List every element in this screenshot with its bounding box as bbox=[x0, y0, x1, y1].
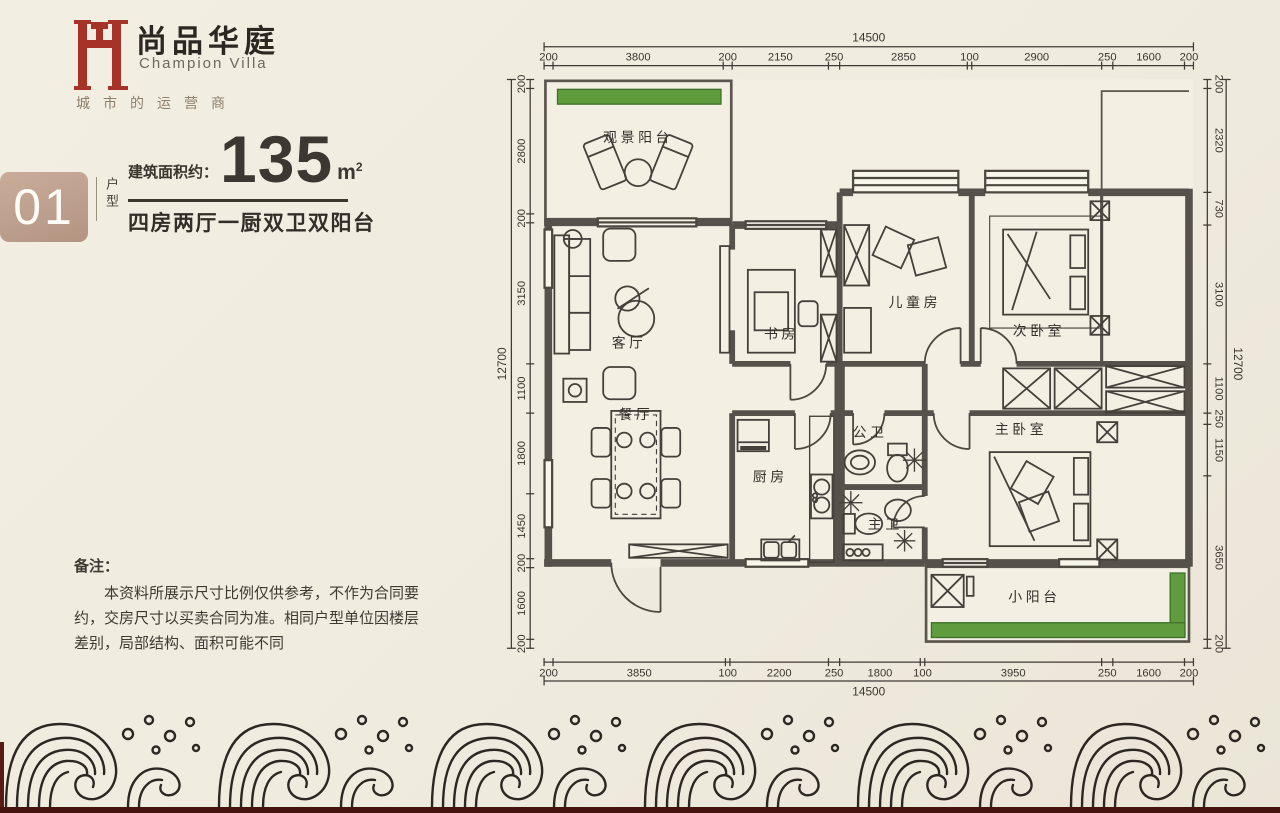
room-label-公卫: 公卫 bbox=[853, 424, 888, 440]
dim-value: 100 bbox=[960, 51, 979, 63]
room-label-儿童房: 儿童房 bbox=[889, 294, 941, 310]
dim-value: 1600 bbox=[1136, 667, 1161, 679]
dim-value: 1100 bbox=[1212, 376, 1224, 400]
dim-value: 3100 bbox=[1212, 282, 1224, 307]
dim-total: 14500 bbox=[852, 30, 885, 44]
dim-value: 1600 bbox=[516, 591, 528, 616]
dim-value: 3150 bbox=[516, 281, 528, 306]
notes-body: 本资料所展示尺寸比例仅供参考，不作为合同要约，交房尺寸以买卖合同为准。相同户型单… bbox=[74, 582, 428, 656]
dim-value: 250 bbox=[825, 51, 844, 63]
room-label-小阳台: 小阳台 bbox=[1008, 589, 1060, 605]
dim-value: 2200 bbox=[767, 667, 792, 679]
dim-value: 250 bbox=[825, 667, 844, 679]
dim-value: 730 bbox=[1212, 199, 1224, 218]
dim-value: 200 bbox=[1180, 667, 1199, 679]
room-label-书房: 书房 bbox=[764, 325, 799, 341]
area-row: 建筑面积约： 135 m2 bbox=[128, 128, 363, 191]
room-label-主卫: 主卫 bbox=[868, 516, 903, 532]
notes-title: 备注： bbox=[74, 555, 428, 576]
floor-plan-svg: 观景阳台客厅书房儿童房次卧室餐厅厨房公卫主卫主卧室小阳台 20038002002… bbox=[497, 28, 1245, 702]
floorplan-flyer-page: 尚品华庭 Champion Villa 城市的运营商 01 户型 建筑面积约： … bbox=[0, 0, 1280, 813]
dim-value: 200 bbox=[516, 209, 528, 228]
dim-value: 3950 bbox=[1001, 667, 1026, 679]
area-underline bbox=[128, 199, 348, 202]
dim-value: 100 bbox=[718, 667, 737, 679]
dim-value: 1600 bbox=[1136, 51, 1161, 63]
layout-summary: 四房两厅一厨双卫双阳台 bbox=[128, 207, 376, 237]
room-label-观景阳台: 观景阳台 bbox=[603, 129, 673, 145]
planter-small-balcony-bottom bbox=[931, 623, 1184, 638]
unit-number: 01 bbox=[13, 178, 75, 236]
dim-value: 3650 bbox=[1212, 545, 1224, 570]
dim-value: 3850 bbox=[627, 667, 652, 679]
notes-block: 备注： 本资料所展示尺寸比例仅供参考，不作为合同要约，交房尺寸以买卖合同为准。相… bbox=[74, 555, 428, 656]
dim-total: 12700 bbox=[1231, 347, 1245, 380]
room-label-餐厅: 餐厅 bbox=[618, 406, 653, 422]
unit-type-label: 户型 bbox=[96, 177, 121, 221]
dim-value: 3800 bbox=[626, 51, 651, 63]
area-unit: m2 bbox=[337, 160, 362, 185]
dim-value: 2800 bbox=[516, 139, 528, 164]
dim-value: 200 bbox=[1212, 75, 1224, 94]
dim-value: 200 bbox=[516, 554, 528, 573]
dim-value: 1800 bbox=[868, 667, 893, 679]
dim-value: 1450 bbox=[516, 514, 528, 539]
dim-value: 1100 bbox=[516, 376, 528, 400]
dim-value: 200 bbox=[718, 51, 737, 63]
dim-value: 2850 bbox=[891, 51, 916, 63]
dim-total: 12700 bbox=[497, 347, 509, 380]
dim-value: 200 bbox=[539, 667, 558, 679]
photo-edge-bottom bbox=[0, 807, 1280, 813]
brand-logo-icon bbox=[74, 16, 128, 94]
room-label-次卧室: 次卧室 bbox=[1013, 323, 1065, 339]
dim-value: 200 bbox=[539, 51, 558, 63]
photo-edge-left bbox=[0, 742, 4, 813]
room-label-厨房: 厨房 bbox=[753, 469, 788, 485]
unit-number-badge: 01 bbox=[0, 172, 88, 242]
dim-value: 1800 bbox=[516, 441, 528, 466]
dim-value: 2320 bbox=[1212, 128, 1224, 153]
dim-value: 250 bbox=[1098, 51, 1117, 63]
area-value: 135 bbox=[220, 128, 333, 191]
brand-tagline: 城市的运营商 bbox=[76, 93, 238, 113]
brand-name-en: Champion Villa bbox=[139, 55, 268, 72]
dim-value: 250 bbox=[1212, 409, 1224, 428]
dim-value: 1150 bbox=[1212, 438, 1224, 462]
dim-value: 200 bbox=[516, 634, 528, 653]
dim-value: 200 bbox=[1180, 51, 1199, 63]
entry-door bbox=[611, 563, 660, 612]
planter-view-balcony bbox=[558, 89, 721, 104]
dim-value: 2900 bbox=[1024, 51, 1049, 63]
dim-value: 200 bbox=[516, 75, 528, 94]
dim-total: 14500 bbox=[852, 685, 885, 699]
wave-border bbox=[0, 700, 1280, 807]
area-prefix: 建筑面积约： bbox=[128, 161, 218, 182]
dim-value: 100 bbox=[913, 667, 932, 679]
dim-value: 250 bbox=[1098, 667, 1117, 679]
dim-value: 2150 bbox=[768, 51, 793, 63]
room-label-主卧室: 主卧室 bbox=[995, 421, 1047, 437]
room-label-客厅: 客厅 bbox=[612, 334, 647, 350]
dim-value: 200 bbox=[1212, 634, 1224, 653]
